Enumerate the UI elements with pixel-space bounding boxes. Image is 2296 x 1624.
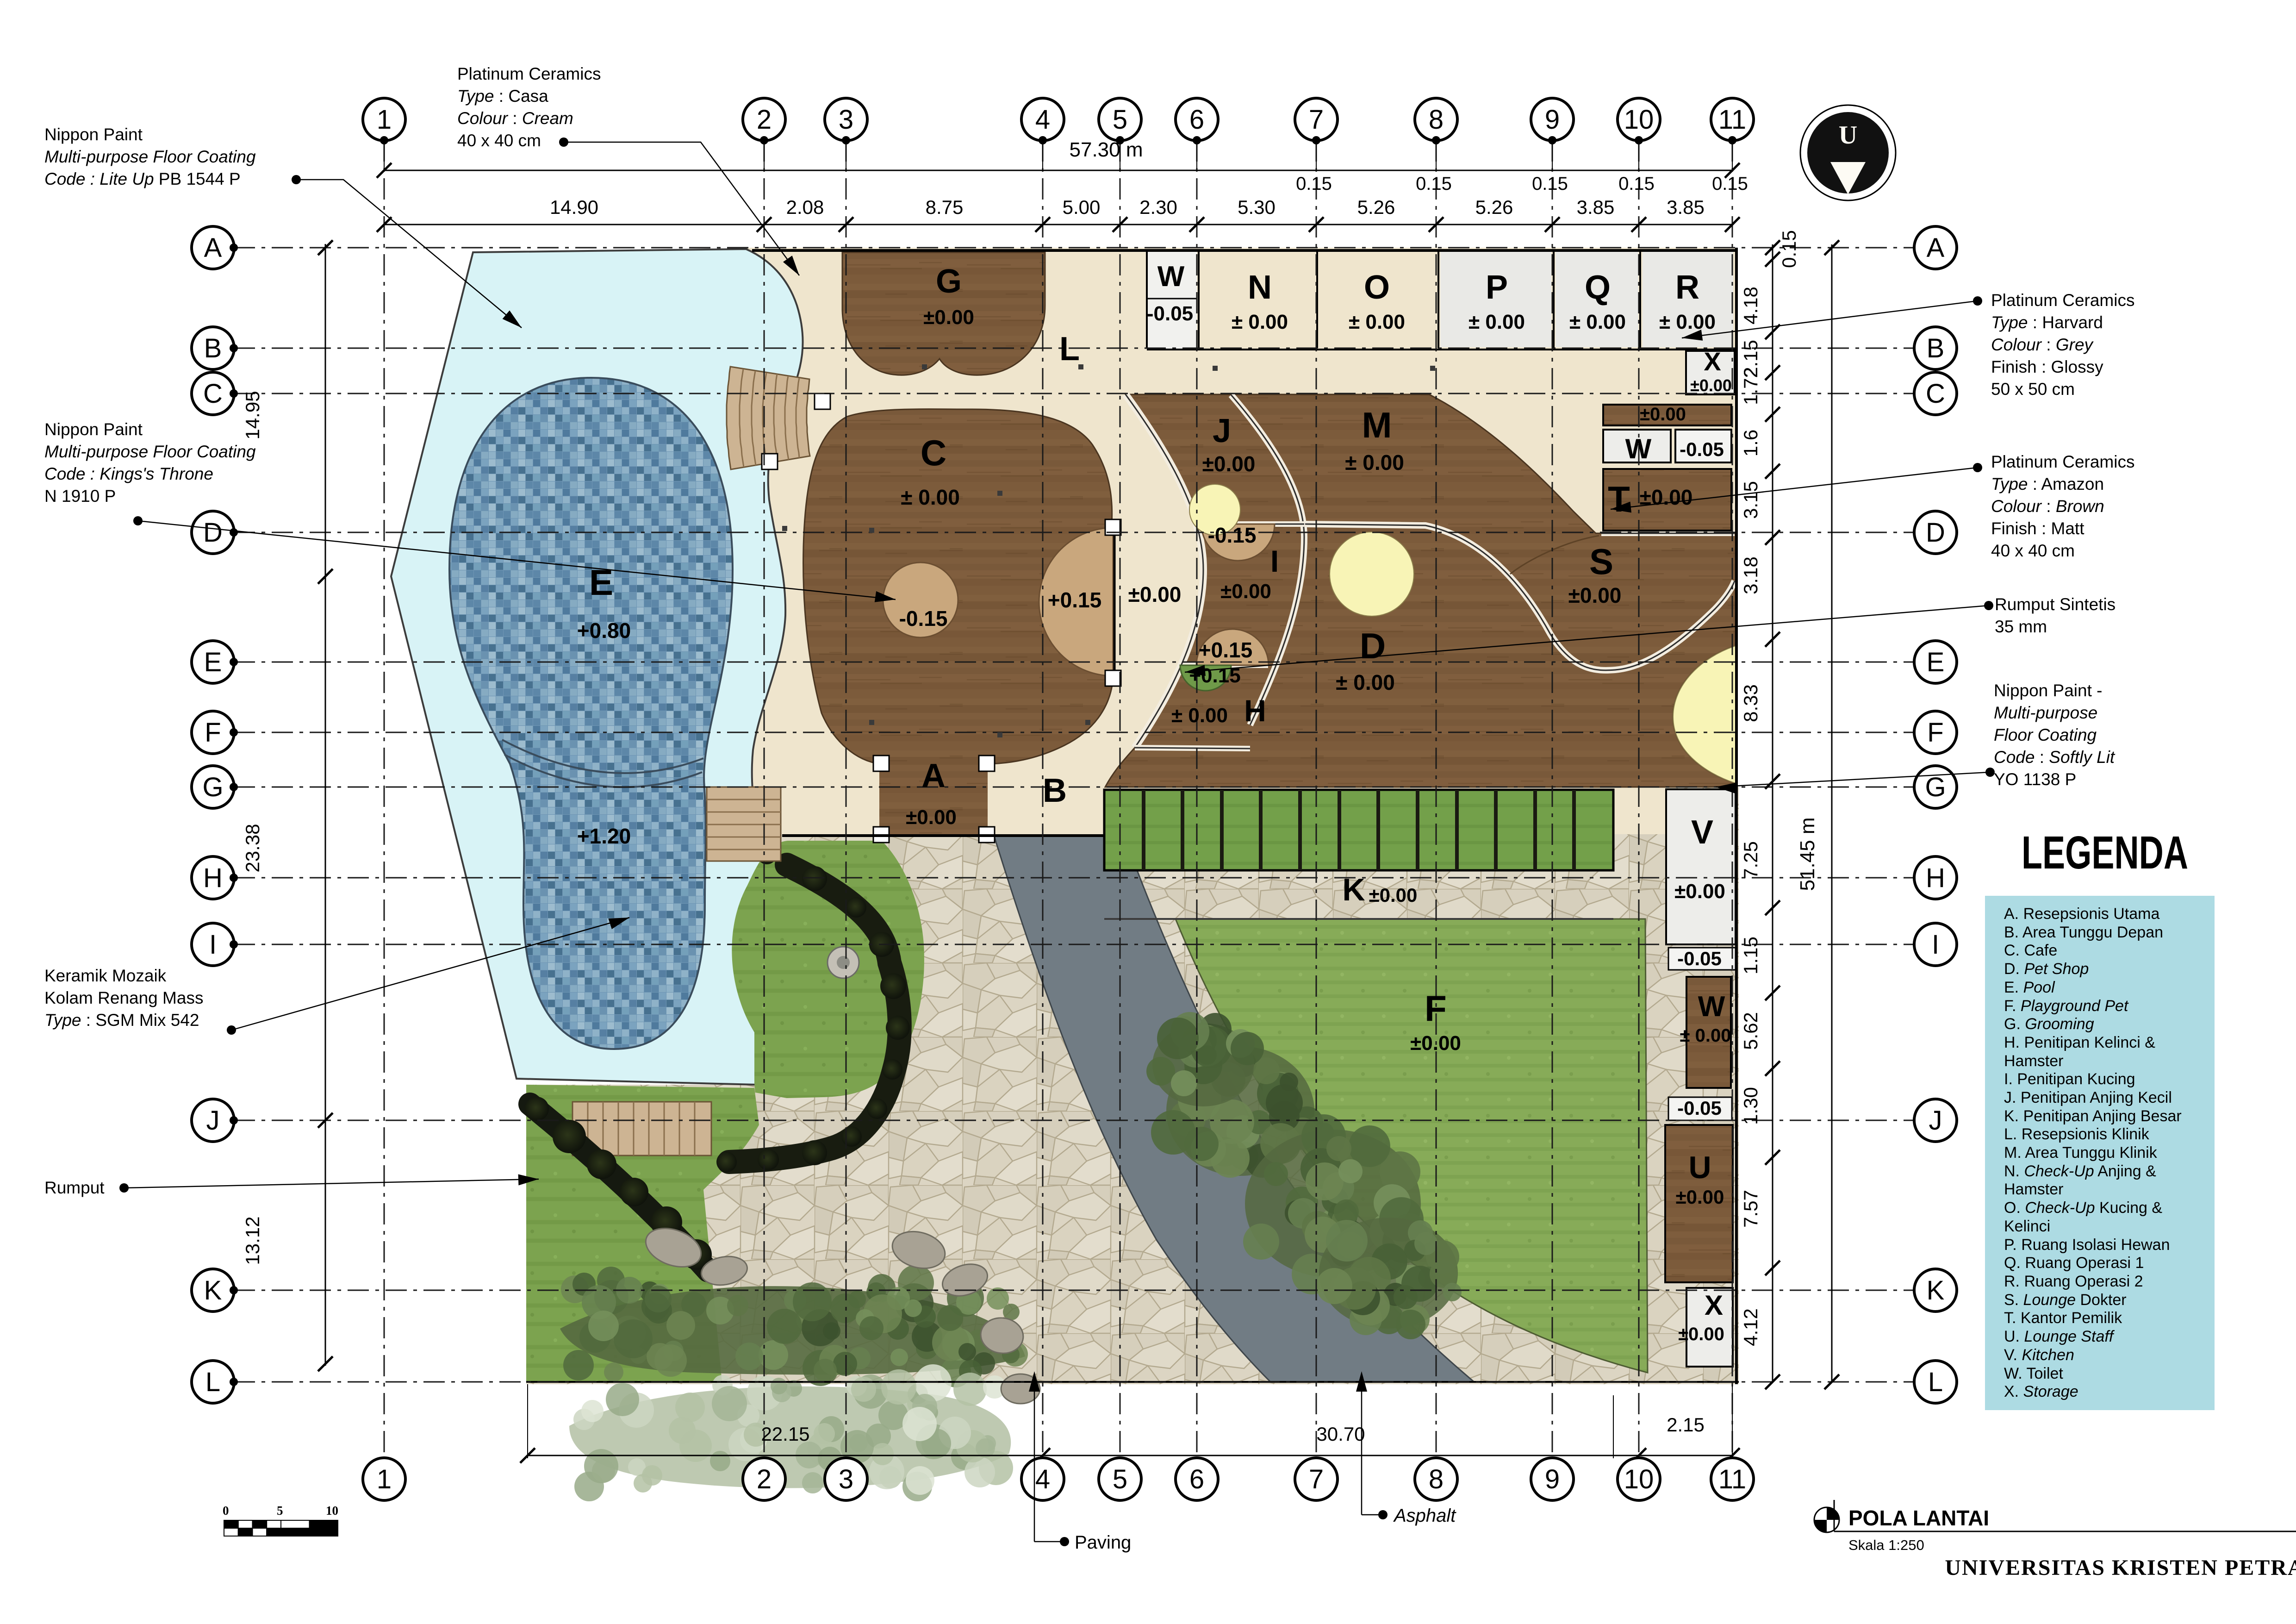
svg-text:E: E (204, 647, 222, 677)
svg-text:5: 5 (277, 1504, 283, 1518)
svg-text:10: 10 (326, 1504, 338, 1518)
svg-text:L: L (1928, 1367, 1943, 1397)
svg-text:±0.00: ±0.00 (1678, 1324, 1724, 1344)
svg-text:L. Resepsionis Klinik: L. Resepsionis Klinik (2004, 1125, 2150, 1143)
svg-text:Type : Amazon: Type : Amazon (1991, 475, 2104, 493)
svg-text:±0.00: ±0.00 (1690, 376, 1732, 395)
svg-text:1.72: 1.72 (1740, 367, 1761, 405)
svg-text:-0.05: -0.05 (1677, 1097, 1722, 1119)
svg-text:B. Area Tunggu Depan: B. Area Tunggu Depan (2004, 924, 2163, 941)
svg-text:6: 6 (1189, 105, 1204, 135)
svg-text:Rumput Sintetis: Rumput Sintetis (1995, 595, 2116, 614)
svg-text:-0.05: -0.05 (1680, 438, 1724, 460)
svg-text:Type : Harvard: Type : Harvard (1991, 313, 2103, 332)
svg-text:Code : Kings's Throne: Code : Kings's Throne (44, 464, 213, 483)
svg-text:Finish : Glossy: Finish : Glossy (1991, 357, 2103, 376)
svg-text:Colour : Grey: Colour : Grey (1991, 335, 2094, 354)
svg-text:Platinum Ceramics: Platinum Ceramics (1991, 452, 2134, 471)
svg-text:±0.00: ±0.00 (1202, 452, 1256, 476)
svg-text:40 x 40 cm: 40 x 40 cm (457, 131, 541, 150)
svg-text:X: X (1704, 347, 1721, 376)
svg-text:7: 7 (1309, 1464, 1324, 1494)
svg-text:±0.00: ±0.00 (1220, 580, 1271, 603)
svg-text:V. Kitchen: V. Kitchen (2004, 1346, 2074, 1364)
svg-text:±0.00: ±0.00 (923, 306, 974, 329)
svg-text:Hamster: Hamster (2004, 1052, 2063, 1070)
svg-text:F. Playground Pet: F. Playground Pet (2004, 997, 2129, 1015)
svg-text:T: T (1608, 479, 1630, 519)
svg-text:C: C (921, 432, 946, 473)
svg-text:W: W (1625, 433, 1652, 464)
svg-text:C. Cafe: C. Cafe (2004, 942, 2057, 959)
svg-text:-0.15: -0.15 (1208, 523, 1257, 547)
svg-text:Hamster: Hamster (2004, 1181, 2063, 1198)
svg-text:G: G (1925, 772, 1946, 802)
svg-text:J. Penitipan Anjing Kecil: J. Penitipan Anjing Kecil (2004, 1089, 2172, 1106)
svg-text:H: H (203, 863, 223, 893)
svg-text:O. Check-Up Kucing &: O. Check-Up Kucing & (2004, 1199, 2162, 1217)
svg-text:8: 8 (1429, 1464, 1444, 1494)
svg-text:4: 4 (1035, 1464, 1050, 1494)
svg-text:Skala 1:250: Skala 1:250 (1848, 1537, 1924, 1553)
svg-text:N. Check-Up Anjing &: N. Check-Up Anjing & (2004, 1162, 2156, 1180)
svg-text:0.15: 0.15 (1296, 174, 1332, 194)
svg-text:J: J (206, 1106, 220, 1136)
svg-text:O: O (1364, 269, 1390, 306)
svg-text:D. Pet Shop: D. Pet Shop (2004, 960, 2089, 978)
svg-text:7: 7 (1309, 105, 1324, 135)
svg-text:51.45 m: 51.45 m (1796, 818, 1819, 891)
svg-text:K: K (204, 1275, 222, 1305)
svg-text:LEGENDA: LEGENDA (2022, 827, 2188, 879)
svg-text:K: K (1927, 1275, 1945, 1305)
svg-text:± 0.00: ± 0.00 (1569, 311, 1626, 333)
svg-text:R. Ruang Operasi 2: R. Ruang Operasi 2 (2004, 1273, 2143, 1290)
svg-text:Multi-purpose: Multi-purpose (1994, 703, 2097, 722)
svg-text:P: P (1486, 269, 1508, 306)
svg-text:H. Penitipan Kelinci &: H. Penitipan Kelinci & (2004, 1034, 2155, 1051)
svg-text:Platinum Ceramics: Platinum Ceramics (1991, 291, 2134, 310)
svg-text:±0.00: ±0.00 (906, 806, 957, 829)
svg-text:± 0.00: ± 0.00 (1336, 670, 1395, 694)
svg-text:3: 3 (839, 105, 853, 135)
svg-text:±0.00: ±0.00 (1676, 1186, 1724, 1208)
svg-text:10: 10 (1624, 105, 1654, 135)
svg-text:0.15: 0.15 (1778, 230, 1800, 268)
svg-text:5: 5 (1113, 105, 1127, 135)
svg-text:Kelinci: Kelinci (2004, 1218, 2050, 1235)
svg-text:F: F (205, 718, 221, 748)
svg-text:I: I (209, 930, 217, 960)
svg-text:G: G (202, 772, 223, 802)
svg-text:1.6: 1.6 (1740, 430, 1761, 456)
svg-text:Finish : Matt: Finish : Matt (1991, 519, 2084, 538)
svg-text:POLA LANTAI: POLA LANTAI (1848, 1506, 1989, 1530)
svg-text:G: G (936, 263, 962, 300)
svg-text:±0.00: ±0.00 (1640, 404, 1686, 425)
svg-text:50 x 50 cm: 50 x 50 cm (1991, 380, 2075, 399)
svg-text:Nippon Paint: Nippon Paint (44, 125, 143, 144)
svg-text:1: 1 (377, 105, 392, 135)
svg-text:E. Pool: E. Pool (2004, 979, 2055, 996)
svg-text:8.75: 8.75 (926, 196, 964, 218)
svg-text:7.25: 7.25 (1740, 841, 1761, 879)
svg-text:3.85: 3.85 (1667, 196, 1705, 218)
svg-text:± 0.00: ± 0.00 (1232, 311, 1288, 333)
svg-text:±0.00: ±0.00 (1369, 884, 1418, 906)
svg-text:57.30 m: 57.30 m (1070, 138, 1143, 161)
svg-text:± 0.00: ± 0.00 (1659, 311, 1716, 333)
svg-text:UNIVERSITAS KRISTEN PETRA: UNIVERSITAS KRISTEN PETRA (1945, 1555, 2296, 1580)
svg-text:Nippon Paint -: Nippon Paint - (1994, 681, 2102, 700)
svg-text:J: J (1213, 412, 1231, 450)
svg-text:± 0.00: ± 0.00 (1349, 311, 1405, 333)
svg-text:± 0.00: ± 0.00 (1345, 450, 1404, 475)
svg-text:A: A (921, 757, 946, 794)
svg-text:5.00: 5.00 (1063, 196, 1101, 218)
svg-text:11: 11 (1718, 1464, 1746, 1494)
svg-text:F: F (1927, 718, 1943, 748)
svg-text:W: W (1157, 261, 1185, 293)
svg-text:35 mm: 35 mm (1995, 617, 2047, 636)
svg-text:14.95: 14.95 (242, 391, 263, 439)
svg-text:3.15: 3.15 (1740, 481, 1761, 519)
svg-text:Colour : Cream: Colour : Cream (457, 109, 573, 128)
svg-text:X: X (1705, 1290, 1723, 1321)
svg-text:Type : SGM Mix 542: Type : SGM Mix 542 (44, 1011, 199, 1030)
svg-text:Asphalt: Asphalt (1393, 1505, 1456, 1526)
svg-text:A: A (204, 233, 222, 263)
svg-text:0.15: 0.15 (1416, 174, 1452, 194)
svg-text:Keramik Mozaik: Keramik Mozaik (44, 966, 167, 985)
svg-text:±0.00: ±0.00 (1640, 485, 1693, 509)
svg-text:Rumput: Rumput (44, 1178, 105, 1197)
svg-text:8: 8 (1429, 105, 1444, 135)
svg-text:D: D (1926, 518, 1945, 548)
svg-text:M: M (1362, 405, 1392, 445)
svg-text:Code : Softly Lit: Code : Softly Lit (1994, 748, 2116, 767)
svg-text:± 0.00: ± 0.00 (1680, 1025, 1731, 1046)
svg-text:-0.15: -0.15 (899, 606, 948, 631)
svg-text:YO 1138 P: YO 1138 P (1994, 770, 2076, 789)
svg-text:H: H (1926, 863, 1945, 893)
svg-text:Colour : Brown: Colour : Brown (1991, 497, 2104, 516)
svg-text:2.15: 2.15 (1667, 1414, 1705, 1436)
svg-text:Kolam Renang Mass: Kolam Renang Mass (44, 988, 203, 1007)
svg-text:F: F (1425, 988, 1447, 1029)
svg-text:Floor Coating: Floor Coating (1994, 725, 2097, 744)
svg-text:± 0.00: ± 0.00 (1171, 704, 1228, 727)
svg-text:A. Resepsionis Utama: A. Resepsionis Utama (2004, 905, 2159, 923)
svg-text:+1.20: +1.20 (577, 824, 631, 848)
svg-text:Multi-purpose Floor Coating: Multi-purpose Floor Coating (44, 147, 256, 166)
svg-text:8.33: 8.33 (1740, 684, 1761, 722)
svg-text:Multi-purpose Floor Coating: Multi-purpose Floor Coating (44, 442, 256, 461)
svg-text:M. Area Tunggu Klinik: M. Area Tunggu Klinik (2004, 1144, 2158, 1162)
svg-text:B: B (1043, 772, 1067, 809)
svg-text:±0.00: ±0.00 (1128, 582, 1182, 606)
svg-text:D: D (1360, 625, 1386, 666)
svg-text:L: L (1059, 331, 1080, 368)
svg-text:I: I (1932, 930, 1939, 960)
svg-text:-0.05: -0.05 (1147, 302, 1193, 325)
svg-text:0.15: 0.15 (1532, 174, 1568, 194)
svg-text:6: 6 (1189, 1464, 1204, 1494)
svg-text:14.90: 14.90 (550, 196, 598, 218)
svg-text:40 x 40 cm: 40 x 40 cm (1991, 541, 2075, 560)
svg-text:23.38: 23.38 (242, 824, 263, 872)
svg-text:2.08: 2.08 (786, 196, 824, 218)
svg-text:5.26: 5.26 (1357, 196, 1395, 218)
svg-text:H: H (1244, 693, 1266, 728)
svg-text:U. Lounge Staff: U. Lounge Staff (2004, 1328, 2115, 1345)
svg-text:S. Lounge Dokter: S. Lounge Dokter (2004, 1291, 2127, 1309)
svg-text:Code : Lite Up PB 1544 P: Code : Lite Up PB 1544 P (44, 169, 241, 188)
svg-text:9: 9 (1545, 105, 1560, 135)
svg-text:I: I (1270, 544, 1279, 578)
svg-text:3.18: 3.18 (1740, 556, 1761, 594)
svg-text:Paving: Paving (1075, 1532, 1131, 1553)
svg-text:±0.00: ±0.00 (1674, 880, 1725, 903)
svg-text:±0.00: ±0.00 (1410, 1032, 1461, 1055)
svg-text:K: K (1342, 872, 1365, 907)
svg-text:Q. Ruang Operasi 1: Q. Ruang Operasi 1 (2004, 1254, 2144, 1272)
svg-text:U: U (1688, 1150, 1711, 1185)
svg-text:A: A (1927, 233, 1945, 263)
svg-text:0: 0 (223, 1504, 229, 1518)
svg-text:1: 1 (377, 1464, 392, 1494)
svg-text:9: 9 (1545, 1464, 1560, 1494)
svg-text:P. Ruang Isolasi Hewan: P. Ruang Isolasi Hewan (2004, 1236, 2170, 1254)
svg-text:± 0.00: ± 0.00 (901, 485, 960, 509)
svg-text:J: J (1929, 1106, 1942, 1136)
svg-text:L: L (205, 1367, 220, 1397)
svg-text:0.15: 0.15 (1712, 174, 1748, 194)
svg-text:Type : Casa: Type : Casa (457, 87, 548, 106)
svg-text:5.30: 5.30 (1238, 196, 1276, 218)
svg-text:3: 3 (839, 1464, 853, 1494)
svg-text:7.57: 7.57 (1740, 1190, 1761, 1228)
svg-text:Platinum Ceramics: Platinum Ceramics (457, 64, 601, 83)
svg-text:0.15: 0.15 (1618, 174, 1655, 194)
svg-text:4.18: 4.18 (1740, 287, 1761, 325)
svg-text:22.15: 22.15 (761, 1423, 809, 1445)
svg-text:5.62: 5.62 (1740, 1012, 1761, 1050)
svg-text:K. Penitipan Anjing Besar: K. Penitipan Anjing Besar (2004, 1107, 2182, 1125)
svg-text:I. Penitipan Kucing: I. Penitipan Kucing (2004, 1070, 2135, 1088)
svg-text:13.12: 13.12 (242, 1216, 263, 1265)
svg-text:3.85: 3.85 (1577, 196, 1615, 218)
svg-text:W. Toilet: W. Toilet (2004, 1365, 2063, 1382)
svg-text:T. Kantor Pemilik: T. Kantor Pemilik (2004, 1309, 2122, 1327)
svg-text:R: R (1675, 269, 1699, 306)
svg-text:C: C (1926, 379, 1945, 409)
svg-text:Nippon Paint: Nippon Paint (44, 420, 143, 439)
svg-text:+0.15: +0.15 (1199, 638, 1252, 662)
svg-text:±0.00: ±0.00 (1568, 583, 1622, 607)
svg-text:B: B (204, 333, 222, 363)
svg-text:2.30: 2.30 (1139, 196, 1177, 218)
svg-text:5.26: 5.26 (1475, 196, 1513, 218)
svg-text:E: E (1927, 647, 1945, 677)
svg-text:C: C (203, 379, 223, 409)
svg-text:D: D (203, 518, 223, 548)
svg-text:X. Storage: X. Storage (2004, 1383, 2078, 1400)
svg-text:+0.80: +0.80 (577, 618, 631, 643)
svg-text:G. Grooming: G. Grooming (2004, 1015, 2094, 1033)
svg-text:-0.05: -0.05 (1677, 948, 1722, 969)
svg-text:S: S (1589, 541, 1613, 582)
svg-text:5: 5 (1113, 1464, 1127, 1494)
svg-text:11: 11 (1718, 105, 1746, 135)
svg-text:1.30: 1.30 (1740, 1087, 1761, 1125)
svg-text:10: 10 (1624, 1464, 1654, 1494)
svg-text:2: 2 (757, 1464, 772, 1494)
svg-text:U: U (1839, 121, 1857, 150)
svg-text:4.12: 4.12 (1740, 1308, 1761, 1346)
svg-text:N 1910 P: N 1910 P (44, 487, 116, 506)
svg-text:Q: Q (1585, 269, 1611, 306)
svg-text:1.15: 1.15 (1740, 937, 1761, 974)
svg-text:+0.15: +0.15 (1048, 588, 1101, 612)
svg-text:B: B (1927, 333, 1945, 363)
svg-text:± 0.00: ± 0.00 (1468, 311, 1525, 333)
svg-text:4: 4 (1035, 105, 1050, 135)
svg-text:2: 2 (757, 105, 772, 135)
svg-text:30.70: 30.70 (1316, 1423, 1365, 1445)
svg-text:W: W (1698, 991, 1725, 1023)
svg-text:N: N (1248, 269, 1272, 306)
svg-text:V: V (1691, 814, 1713, 851)
